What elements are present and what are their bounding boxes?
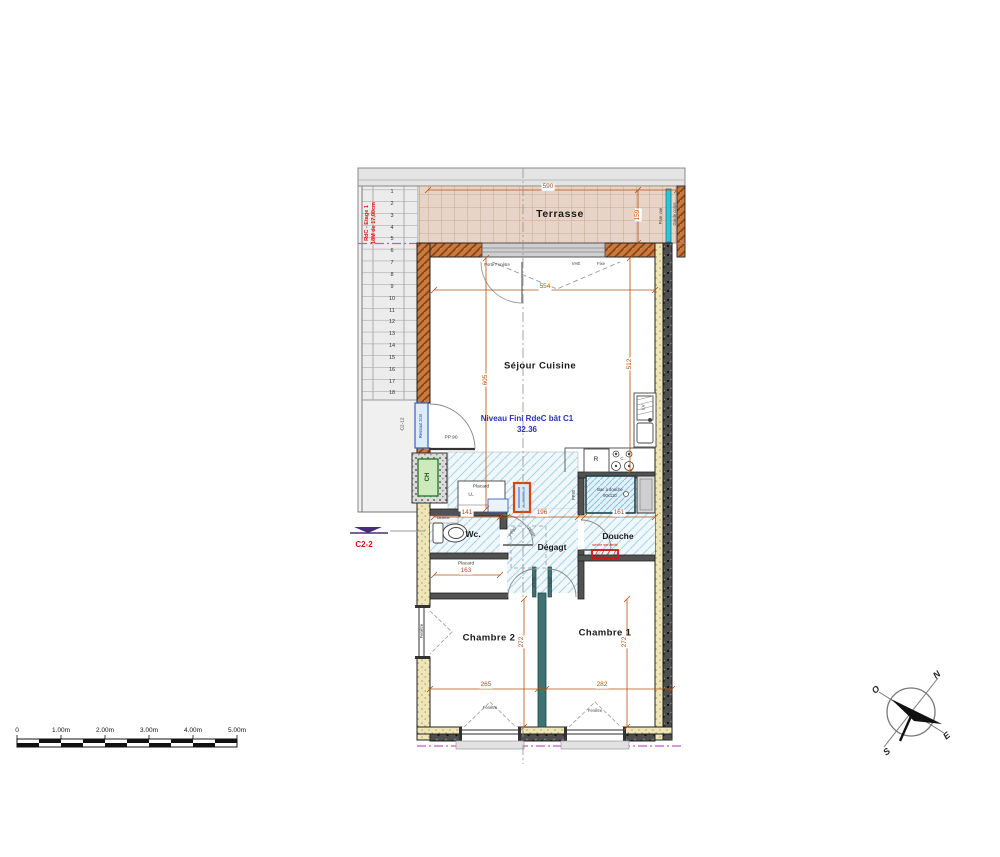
stair-step-number: 4	[384, 225, 400, 231]
room-label-terrasse: Terrasse	[536, 209, 584, 220]
pare-vue-label: Pare vue	[659, 208, 663, 225]
scale-label-1m: 1.00m	[52, 728, 70, 735]
stair-step-number: 1	[384, 189, 400, 195]
seche-serviette-label: sèche serviette	[592, 544, 618, 548]
stair-step-number: 18	[384, 390, 400, 396]
fenetre-label-chambre2: Fenêtre	[483, 706, 497, 710]
dim-placard-width: 163	[460, 568, 473, 575]
stair-step-number: 2	[384, 201, 400, 207]
fenetre-label-west: Fenêtre	[420, 624, 424, 638]
bac-douche-label-line2: 90x120	[603, 494, 617, 498]
section-c2-2-label: C2-2	[355, 541, 372, 549]
dim-wc-width: 141	[461, 510, 474, 517]
ressaut-label: Ressaut 2cm	[419, 414, 423, 438]
room-label-chambre2: Chambre 2	[463, 633, 516, 643]
dim-terrasse-depth: 159	[635, 209, 642, 222]
dim-sejour-width: 554	[539, 284, 552, 291]
section-c2-12-label: C2-12	[402, 417, 407, 430]
garde-corps-label: Garde corps	[673, 202, 677, 225]
scale-label-4m: 4.00m	[184, 728, 202, 735]
vhe-label: VHE	[572, 262, 581, 266]
chambre-divider-wall	[538, 593, 546, 727]
door-tag-pp80-chambre2: PP80	[532, 577, 536, 587]
dim-chambre2-depth: 272	[519, 636, 526, 649]
fixe-label: Fixe	[597, 262, 605, 266]
scale-label-3m: 3.00m	[140, 728, 158, 735]
stair-step-number: 17	[384, 379, 400, 385]
vanity-cabinet	[637, 476, 655, 513]
stair-step-number: 16	[384, 367, 400, 373]
scale-label-2m: 2.00m	[96, 728, 114, 735]
stair-annotation-line1: RdC - Etage 1	[364, 202, 371, 244]
dim-right-height: 512	[627, 358, 634, 371]
privacy-screen-bar	[666, 189, 671, 242]
compass-rose	[879, 678, 944, 747]
dim-douche-width: 161	[613, 510, 626, 517]
placard-ll-sub-label: LL	[468, 494, 473, 499]
dim-degagement-width: 196	[536, 510, 549, 517]
cooktop-label: C.	[620, 457, 624, 461]
stair-step-number: 7	[384, 260, 400, 266]
stair-step-number: 10	[384, 296, 400, 302]
scale-bar	[17, 735, 237, 747]
duct-box	[514, 483, 530, 512]
stair-step-number: 6	[384, 248, 400, 254]
stair-step-number: 15	[384, 355, 400, 361]
refrigerator-label: R	[594, 457, 599, 464]
stair-step-number: 13	[384, 331, 400, 337]
stair-step-number: 11	[384, 308, 400, 314]
toilet	[433, 523, 467, 543]
porte-fenetre-label: Porte Fenêtre	[484, 263, 510, 267]
entry-door	[415, 403, 475, 449]
bac-douche-label-line1: Bac à douche	[597, 488, 623, 492]
room-label-degagement: Dégagt	[538, 543, 567, 552]
stair-step-number: 5	[384, 236, 400, 242]
dishwasher-label: LV	[643, 404, 648, 410]
niveau-note-line1: Niveau Fini RdeC bât C1	[481, 415, 573, 423]
door-tag-pp80-chambre1: PP80	[549, 577, 553, 587]
tablette-label: Tablette	[436, 517, 449, 521]
scale-label-5m: 5.00m	[228, 728, 246, 735]
section-marker-c2-2	[350, 527, 425, 533]
dim-chambre1-width: 282	[596, 682, 609, 689]
room-label-wc: Wc.	[465, 530, 480, 539]
stair-step-number: 3	[384, 213, 400, 219]
stair-annotation-line2: 18M de 17,00cm	[371, 202, 378, 244]
stair-step-number: 9	[384, 284, 400, 290]
stair-annotation: RdC - Etage 1 18M de 17,00cm	[364, 202, 378, 244]
dim-chambre2-width: 265	[480, 682, 493, 689]
water-heater-label: CH	[425, 473, 431, 482]
washbasin-box	[488, 499, 508, 512]
fenetre-label-chambre1: Fenêtre	[588, 709, 602, 713]
room-label-douche: Douche	[602, 532, 633, 541]
dim-terrasse-width: 590	[542, 184, 555, 191]
stair-step-number: 8	[384, 272, 400, 278]
placard-ll-label: Placard	[473, 486, 489, 491]
dim-left-height: 605	[483, 374, 490, 387]
terrace-slab-edge	[358, 168, 685, 186]
door-tag-pp80-douche: PP80	[572, 490, 576, 500]
dim-chambre1-depth: 272	[622, 636, 629, 649]
room-label-sejour-cuisine: Séjour Cuisine	[504, 361, 576, 371]
stair-step-number: 12	[384, 319, 400, 325]
door-tag-pp90: PP 90	[445, 437, 458, 442]
kitchen-counter-edge	[565, 448, 655, 472]
stair-step-number: 14	[384, 343, 400, 349]
floorplan-canvas: Terrasse 590 159 Pare vue Garde corps Po…	[0, 0, 1000, 857]
kitchen-sink	[634, 393, 656, 447]
niveau-note-value: 32.36	[517, 426, 537, 434]
terrace-sliding-door	[481, 243, 620, 303]
scale-label-0: 0	[15, 728, 19, 735]
